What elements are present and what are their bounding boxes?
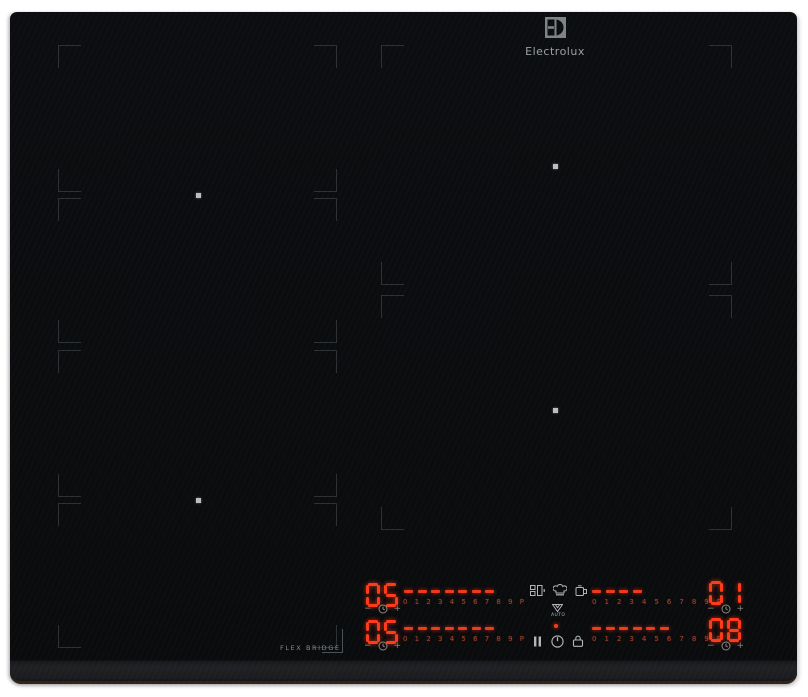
cooking-zone-left-segment-4 [58,503,337,648]
hob-surface: Electrolux FLEX BRIDGE [10,12,797,684]
flex-bridge-bracket-line [342,629,343,653]
timer-controls-left-top: − + [364,604,401,614]
power-display-right-bottom [709,618,745,642]
zone-center-dot [196,498,201,503]
slider-scale-left-bottom[interactable]: 0 1 2 3 4 5 6 7 8 9 P [403,635,524,643]
cooking-zone-left-segment-3 [58,350,337,497]
pot-icon [575,585,588,596]
power-indicator-dot [554,624,558,628]
electrolux-emblem-icon [545,17,566,38]
flex-bridge-bracket-line [322,652,342,653]
timer-icon [378,604,388,614]
timer-plus-button[interactable]: + [394,604,402,614]
flex-bridge-label: FLEX BRIDGE [280,644,341,652]
slider-scale-right-top[interactable]: 0 1 2 3 4 5 6 7 8 9 P [592,598,721,606]
timer-icon [721,641,731,651]
timer-minus-button[interactable]: − [707,641,715,651]
power-icon[interactable] [551,635,564,648]
timer-plus-button[interactable]: + [737,604,745,614]
cooking-zone-left-segment-2 [58,198,337,343]
timer-controls-right-top: − + [707,604,744,614]
pause-icon[interactable] [533,636,542,647]
zone-center-dot [196,193,201,198]
lock-icon[interactable] [572,635,584,647]
slider-scale-right-bottom[interactable]: 0 1 2 3 4 5 6 7 8 9 P [592,635,721,643]
hood-auto-label: AUTO [551,613,565,618]
timer-controls-right-bottom: − + [707,641,744,651]
timer-icon [378,641,388,651]
zone-center-dot [553,164,558,169]
product-photo: Electrolux FLEX BRIDGE [0,0,808,697]
cooking-zone-left-segment-1 [58,45,337,192]
timer-icon [721,604,731,614]
chef-hat-icon [553,584,567,596]
zone-center-dot [553,408,558,413]
hood-auto-icon[interactable] [552,604,563,612]
power-slider-left-bottom[interactable] [404,627,494,630]
timer-minus-button[interactable]: − [364,604,372,614]
flexibridge-icon [530,585,545,596]
power-slider-left-top[interactable] [404,590,494,593]
timer-minus-button[interactable]: − [364,641,372,651]
timer-controls-left-bottom: − + [364,641,401,651]
timer-plus-button[interactable]: + [394,641,402,651]
front-bevel-edge [10,660,797,684]
timer-minus-button[interactable]: − [707,604,715,614]
power-slider-right-top[interactable] [592,590,642,593]
power-slider-right-bottom[interactable] [592,627,669,630]
power-display-right-top [709,581,745,605]
slider-scale-left-top[interactable]: 0 1 2 3 4 5 6 7 8 9 P [403,598,524,606]
timer-plus-button[interactable]: + [737,641,745,651]
